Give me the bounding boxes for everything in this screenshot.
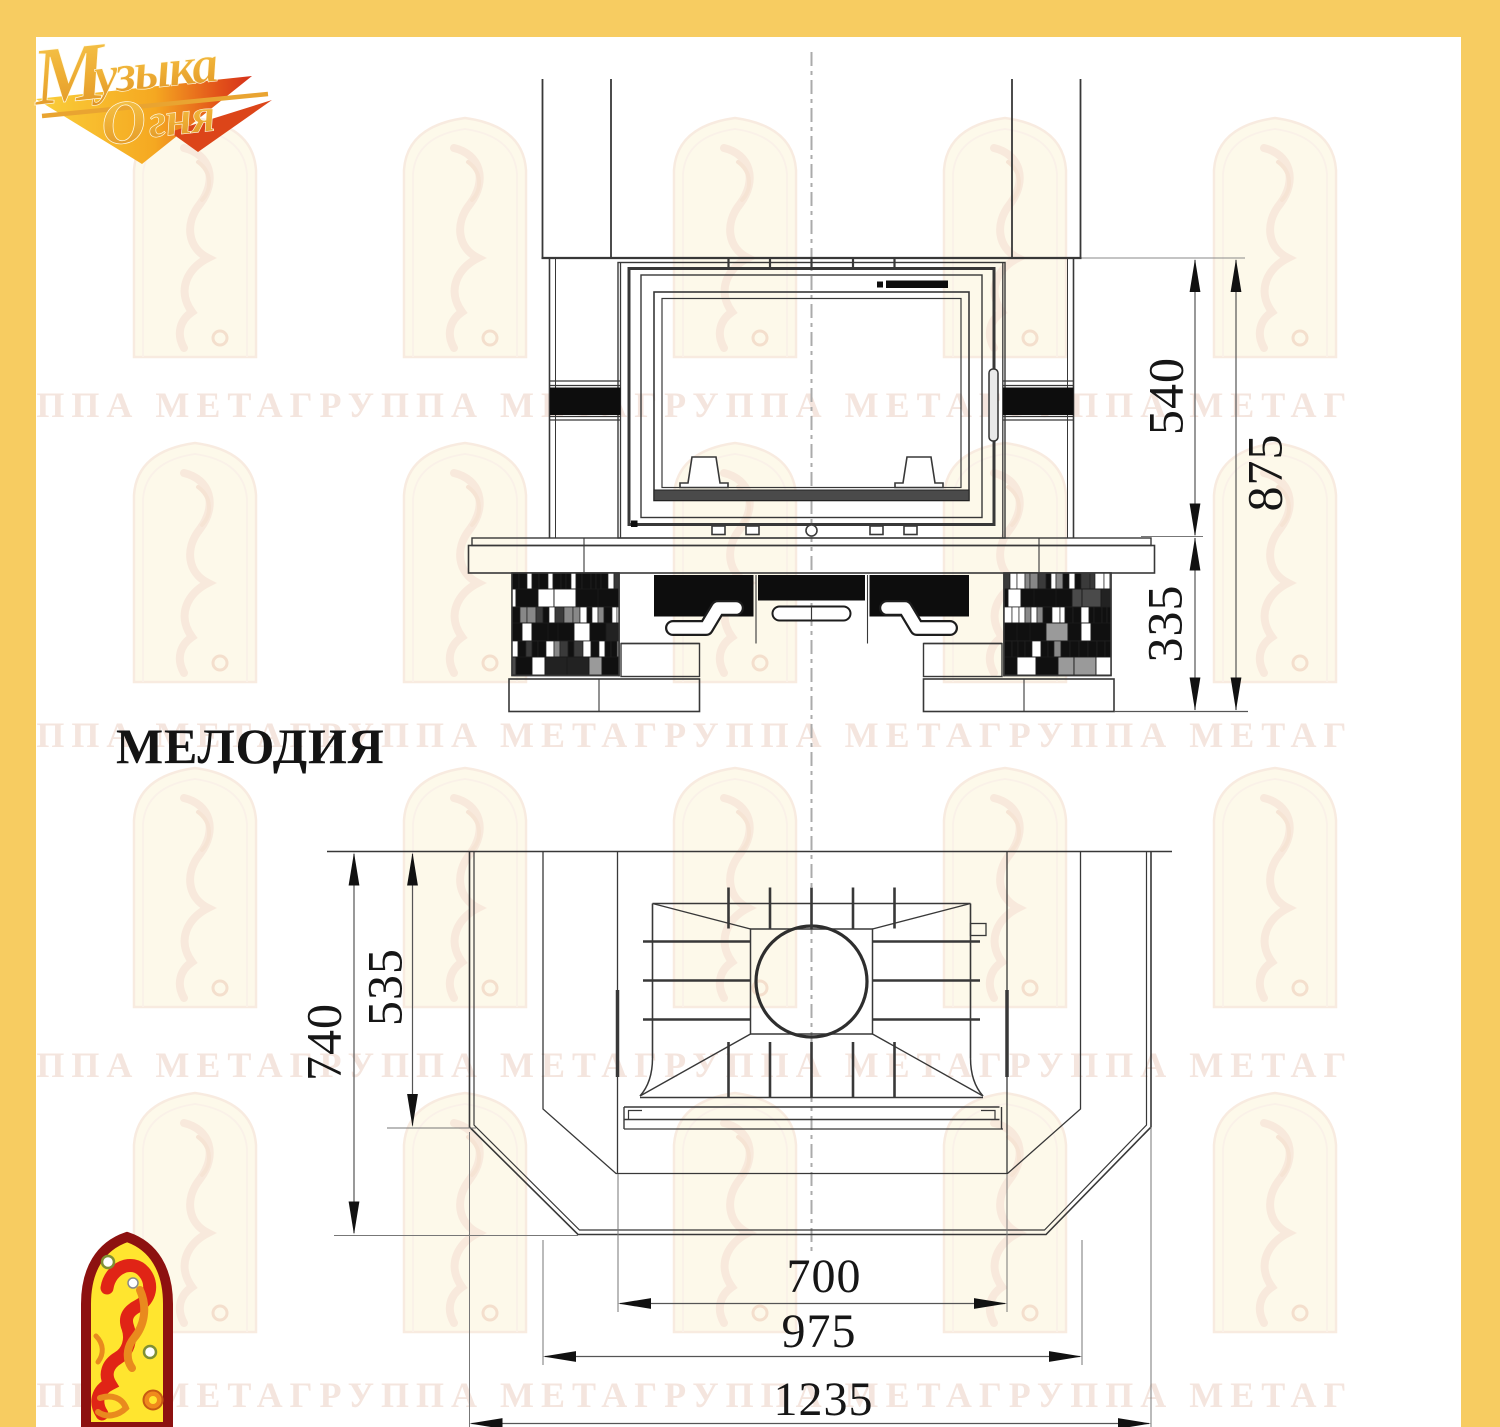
svg-text:1235: 1235 xyxy=(774,1373,874,1426)
svg-text:335: 335 xyxy=(1137,585,1193,663)
svg-text:535: 535 xyxy=(357,948,413,1026)
svg-text:875: 875 xyxy=(1237,434,1293,512)
svg-text:740: 740 xyxy=(296,1003,352,1081)
svg-text:МЕЛОДИЯ: МЕЛОДИЯ xyxy=(116,718,385,774)
svg-text:700: 700 xyxy=(787,1250,862,1303)
svg-text:гня: гня xyxy=(146,89,218,149)
svg-text:975: 975 xyxy=(782,1305,857,1358)
svg-text:540: 540 xyxy=(1138,357,1194,435)
svg-text:О: О xyxy=(98,87,150,159)
svg-text:ГРУППА МЕТАГРУППА МЕТАГРУППА М: ГРУППА МЕТАГРУППА МЕТАГРУППА МЕТАГРУППА … xyxy=(0,1375,1353,1415)
